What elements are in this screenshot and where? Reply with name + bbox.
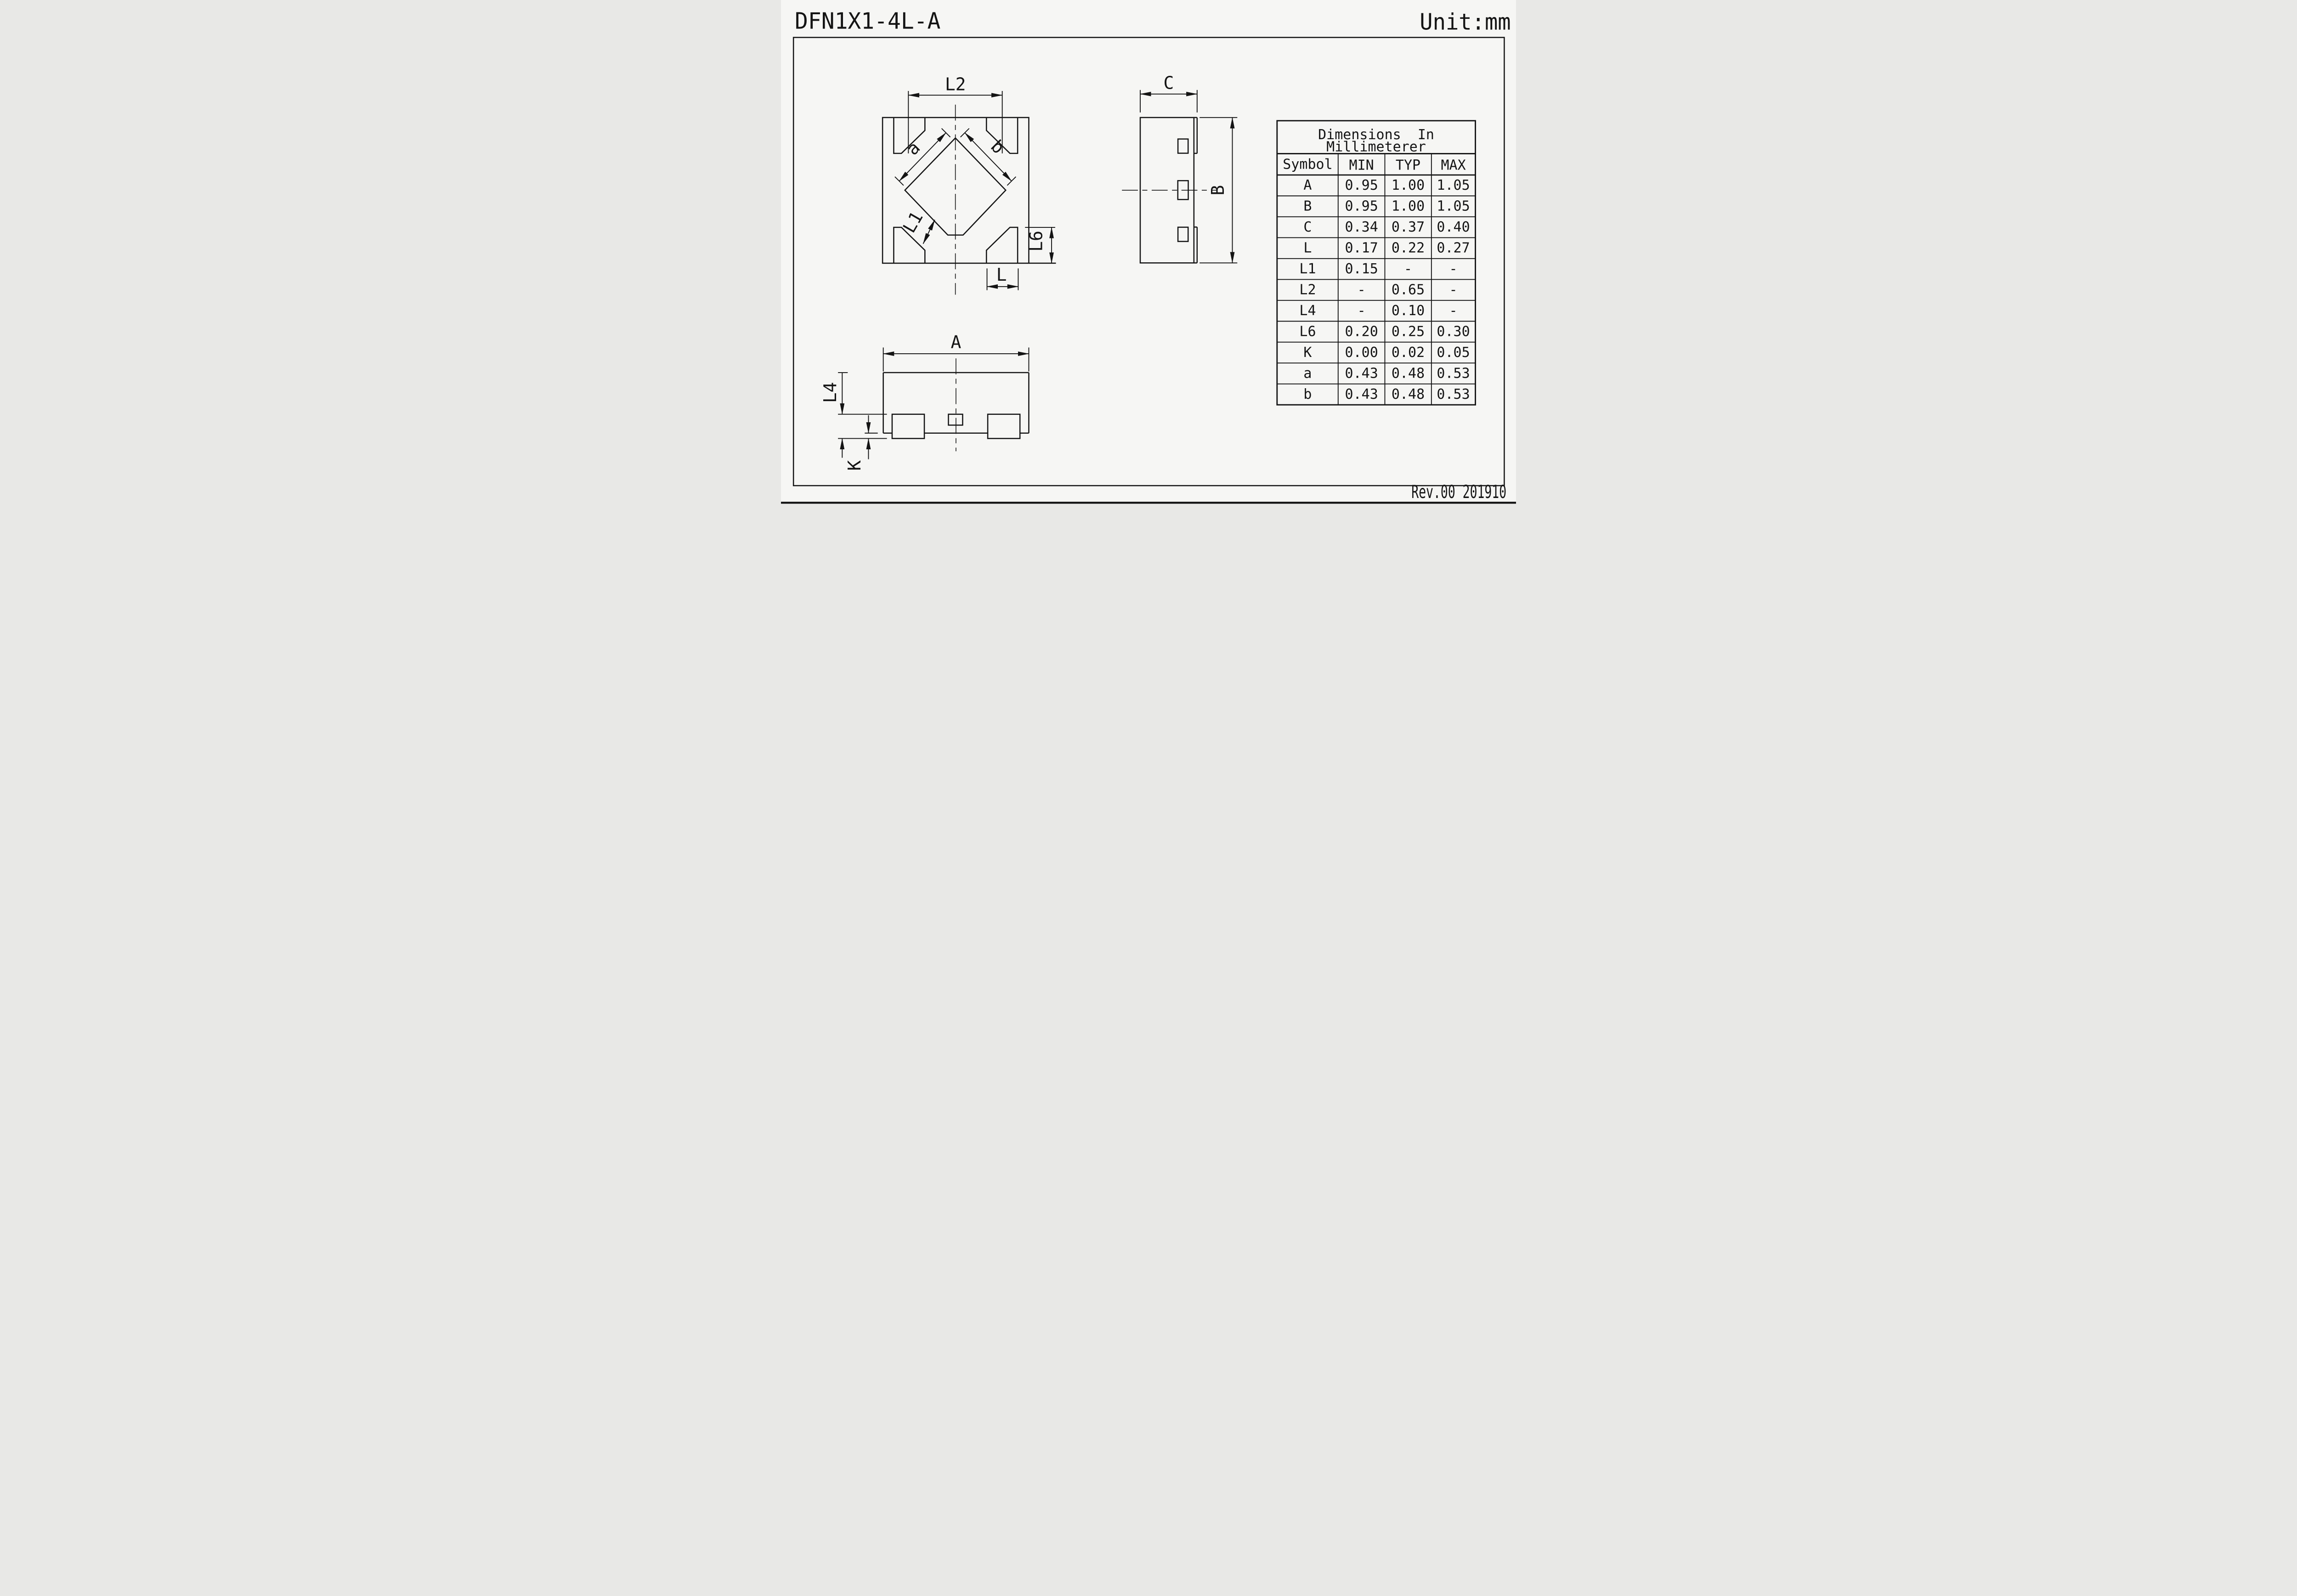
cell-max: 0.53 bbox=[1437, 365, 1470, 381]
cell-typ: 0.37 bbox=[1392, 219, 1425, 235]
cell-symbol: b bbox=[1303, 386, 1312, 402]
cell-typ: 1.00 bbox=[1392, 198, 1425, 215]
cell-symbol: L6 bbox=[1299, 323, 1316, 340]
revision-label: Rev.00 201910 bbox=[1411, 481, 1506, 503]
table-title-line2: Millimeterer bbox=[1326, 139, 1426, 155]
cell-symbol: B bbox=[1303, 198, 1312, 215]
cell-min: - bbox=[1358, 303, 1366, 319]
l2-label: L2 bbox=[945, 74, 966, 94]
cell-symbol: L1 bbox=[1299, 261, 1316, 277]
cell-typ: 0.22 bbox=[1392, 240, 1425, 256]
cell-max: 0.27 bbox=[1437, 240, 1470, 256]
cell-symbol: L2 bbox=[1299, 282, 1316, 298]
b-side-label: B bbox=[1208, 185, 1228, 196]
cell-max: - bbox=[1449, 282, 1458, 298]
cell-max: 0.05 bbox=[1437, 345, 1470, 361]
l6-label: L6 bbox=[1026, 231, 1046, 252]
cell-typ: 0.10 bbox=[1392, 303, 1425, 319]
cell-typ: 0.02 bbox=[1392, 345, 1425, 361]
cell-typ: 1.00 bbox=[1392, 177, 1425, 193]
cell-typ: 0.65 bbox=[1392, 282, 1425, 298]
cell-typ: 0.48 bbox=[1392, 386, 1425, 402]
cell-min: 0.00 bbox=[1345, 345, 1378, 361]
cell-max: 0.40 bbox=[1437, 219, 1470, 235]
cell-min: 0.34 bbox=[1345, 219, 1378, 235]
unit-label: Unit:mm bbox=[1420, 9, 1511, 35]
cell-symbol: a bbox=[1303, 365, 1312, 381]
cell-min: 0.43 bbox=[1345, 365, 1378, 381]
cell-min: 0.43 bbox=[1345, 386, 1378, 402]
cell-min: - bbox=[1358, 282, 1366, 298]
cell-max: - bbox=[1449, 303, 1458, 319]
table-col-typ: TYP bbox=[1396, 158, 1420, 174]
cell-symbol: L4 bbox=[1299, 303, 1316, 319]
l-label: L bbox=[996, 265, 1007, 285]
l4-label: L4 bbox=[820, 382, 840, 403]
page-title: DFN1X1-4L-A bbox=[795, 8, 940, 34]
cell-symbol: L bbox=[1303, 240, 1312, 256]
table-col-min: MIN bbox=[1349, 158, 1374, 174]
table-col-symbol: Symbol bbox=[1283, 156, 1332, 172]
cell-min: 0.17 bbox=[1345, 240, 1378, 256]
a-front-label: A bbox=[950, 332, 961, 352]
cell-min: 0.95 bbox=[1345, 177, 1378, 193]
datasheet-page: DFN1X1-4L-A Unit:mm Rev.00 201910 L2 a bbox=[781, 0, 1516, 504]
cell-max: 0.30 bbox=[1437, 323, 1470, 340]
cell-max: 1.05 bbox=[1437, 177, 1470, 193]
cell-max: 0.53 bbox=[1437, 386, 1470, 402]
cell-typ: 0.25 bbox=[1392, 323, 1425, 340]
cell-min: 0.20 bbox=[1345, 323, 1378, 340]
c-label: C bbox=[1163, 73, 1174, 93]
cell-typ: - bbox=[1404, 261, 1412, 277]
k-label: K bbox=[844, 460, 865, 471]
cell-symbol: K bbox=[1303, 345, 1312, 361]
cell-min: 0.15 bbox=[1345, 261, 1378, 277]
cell-max: - bbox=[1449, 261, 1458, 277]
cell-typ: 0.48 bbox=[1392, 365, 1425, 381]
table-col-max: MAX bbox=[1441, 158, 1465, 174]
cell-max: 1.05 bbox=[1437, 198, 1470, 215]
cell-min: 0.95 bbox=[1345, 198, 1378, 215]
drawing-canvas: DFN1X1-4L-A Unit:mm Rev.00 201910 L2 a bbox=[781, 0, 1516, 504]
cell-symbol: C bbox=[1303, 219, 1312, 235]
cell-symbol: A bbox=[1303, 177, 1312, 193]
